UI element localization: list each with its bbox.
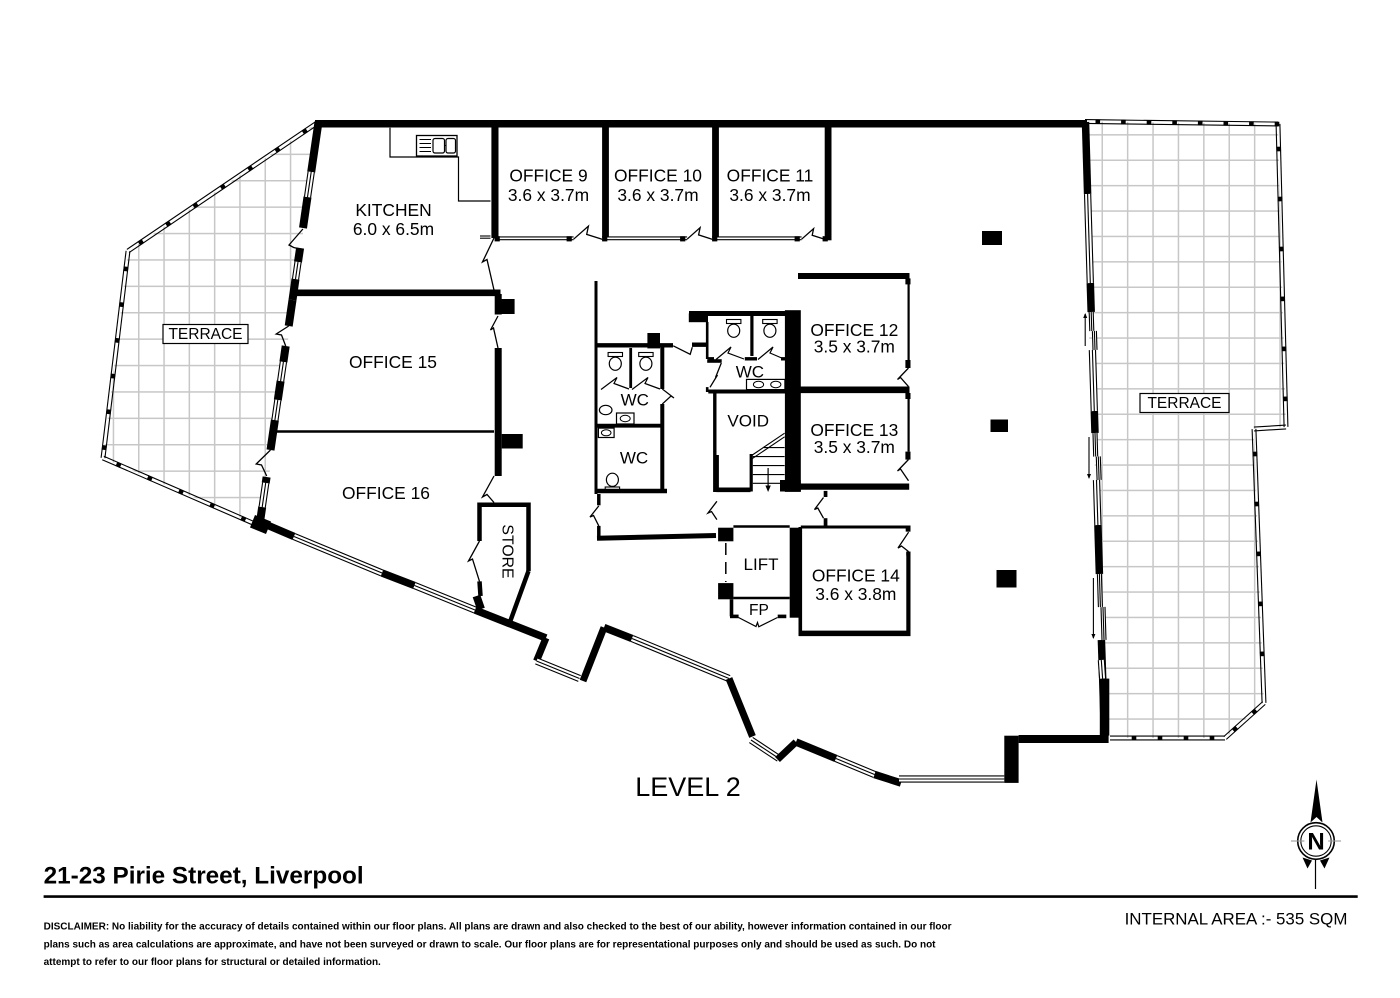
- svg-text:3.6 x 3.7m: 3.6 x 3.7m: [729, 185, 810, 205]
- svg-text:3.5 x 3.7m: 3.5 x 3.7m: [814, 337, 895, 357]
- svg-text:KITCHEN: KITCHEN: [355, 200, 431, 220]
- svg-text:6.0 x 6.5m: 6.0 x 6.5m: [353, 219, 434, 239]
- svg-text:VOID: VOID: [727, 411, 769, 430]
- svg-text:OFFICE 14: OFFICE 14: [812, 566, 900, 586]
- svg-text:plans such as area calculation: plans such as area calculations are appr…: [44, 939, 937, 950]
- svg-text:STORE: STORE: [499, 524, 516, 578]
- svg-text:3.6 x 3.8m: 3.6 x 3.8m: [815, 584, 896, 604]
- svg-text:3.5 x 3.7m: 3.5 x 3.7m: [814, 437, 895, 457]
- svg-text:3.6 x 3.7m: 3.6 x 3.7m: [617, 185, 698, 205]
- svg-text:OFFICE 15: OFFICE 15: [349, 352, 437, 372]
- svg-text:WC: WC: [736, 363, 764, 382]
- svg-text:OFFICE 10: OFFICE 10: [614, 165, 702, 185]
- svg-text:N: N: [1307, 829, 1324, 856]
- svg-text:3.6 x 3.7m: 3.6 x 3.7m: [508, 185, 589, 205]
- svg-text:LIFT: LIFT: [744, 555, 779, 574]
- svg-text:attempt to refer to our floor: attempt to refer to our floor plans for …: [44, 957, 381, 968]
- svg-text:DISCLAIMER: No liability for t: DISCLAIMER: No liability for the accurac…: [44, 922, 952, 933]
- svg-text:WC: WC: [620, 449, 648, 468]
- svg-text:FP: FP: [749, 602, 769, 619]
- svg-text:OFFICE 11: OFFICE 11: [727, 165, 814, 185]
- svg-text:TERRACE: TERRACE: [1147, 395, 1221, 412]
- svg-text:LEVEL 2: LEVEL 2: [635, 772, 741, 802]
- svg-text:OFFICE 16: OFFICE 16: [342, 483, 430, 503]
- svg-text:TERRACE: TERRACE: [168, 326, 242, 343]
- svg-text:OFFICE 9: OFFICE 9: [509, 165, 587, 185]
- svg-text:INTERNAL AREA :- 535 SQM: INTERNAL AREA :- 535 SQM: [1125, 910, 1348, 929]
- svg-text:WC: WC: [621, 391, 649, 410]
- svg-text:21-23 Pirie Street, Liverpool: 21-23 Pirie Street, Liverpool: [44, 863, 364, 890]
